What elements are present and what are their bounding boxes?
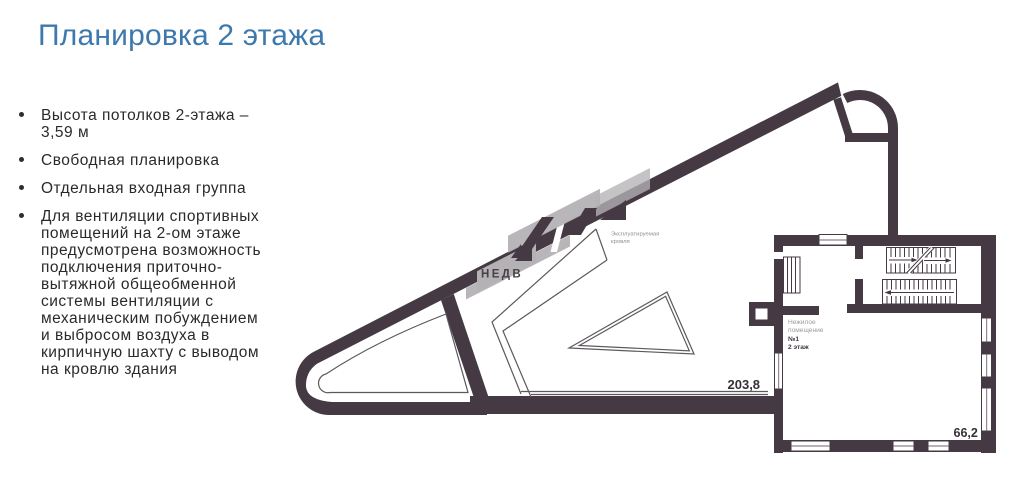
svg-text:66,2: 66,2 bbox=[954, 426, 978, 440]
svg-text:203,8: 203,8 bbox=[728, 377, 761, 392]
svg-text:помещение: помещение bbox=[788, 327, 824, 334]
svg-text:Эксплуатируемая: Эксплуатируемая bbox=[611, 232, 659, 238]
svg-text:№1: №1 bbox=[788, 336, 799, 343]
svg-text:2 этаж: 2 этаж bbox=[788, 344, 809, 351]
svg-text:НЕДВ: НЕДВ bbox=[481, 269, 523, 281]
svg-text:кровля: кровля bbox=[611, 239, 630, 245]
svg-text:Нежилое: Нежилое bbox=[788, 319, 816, 326]
